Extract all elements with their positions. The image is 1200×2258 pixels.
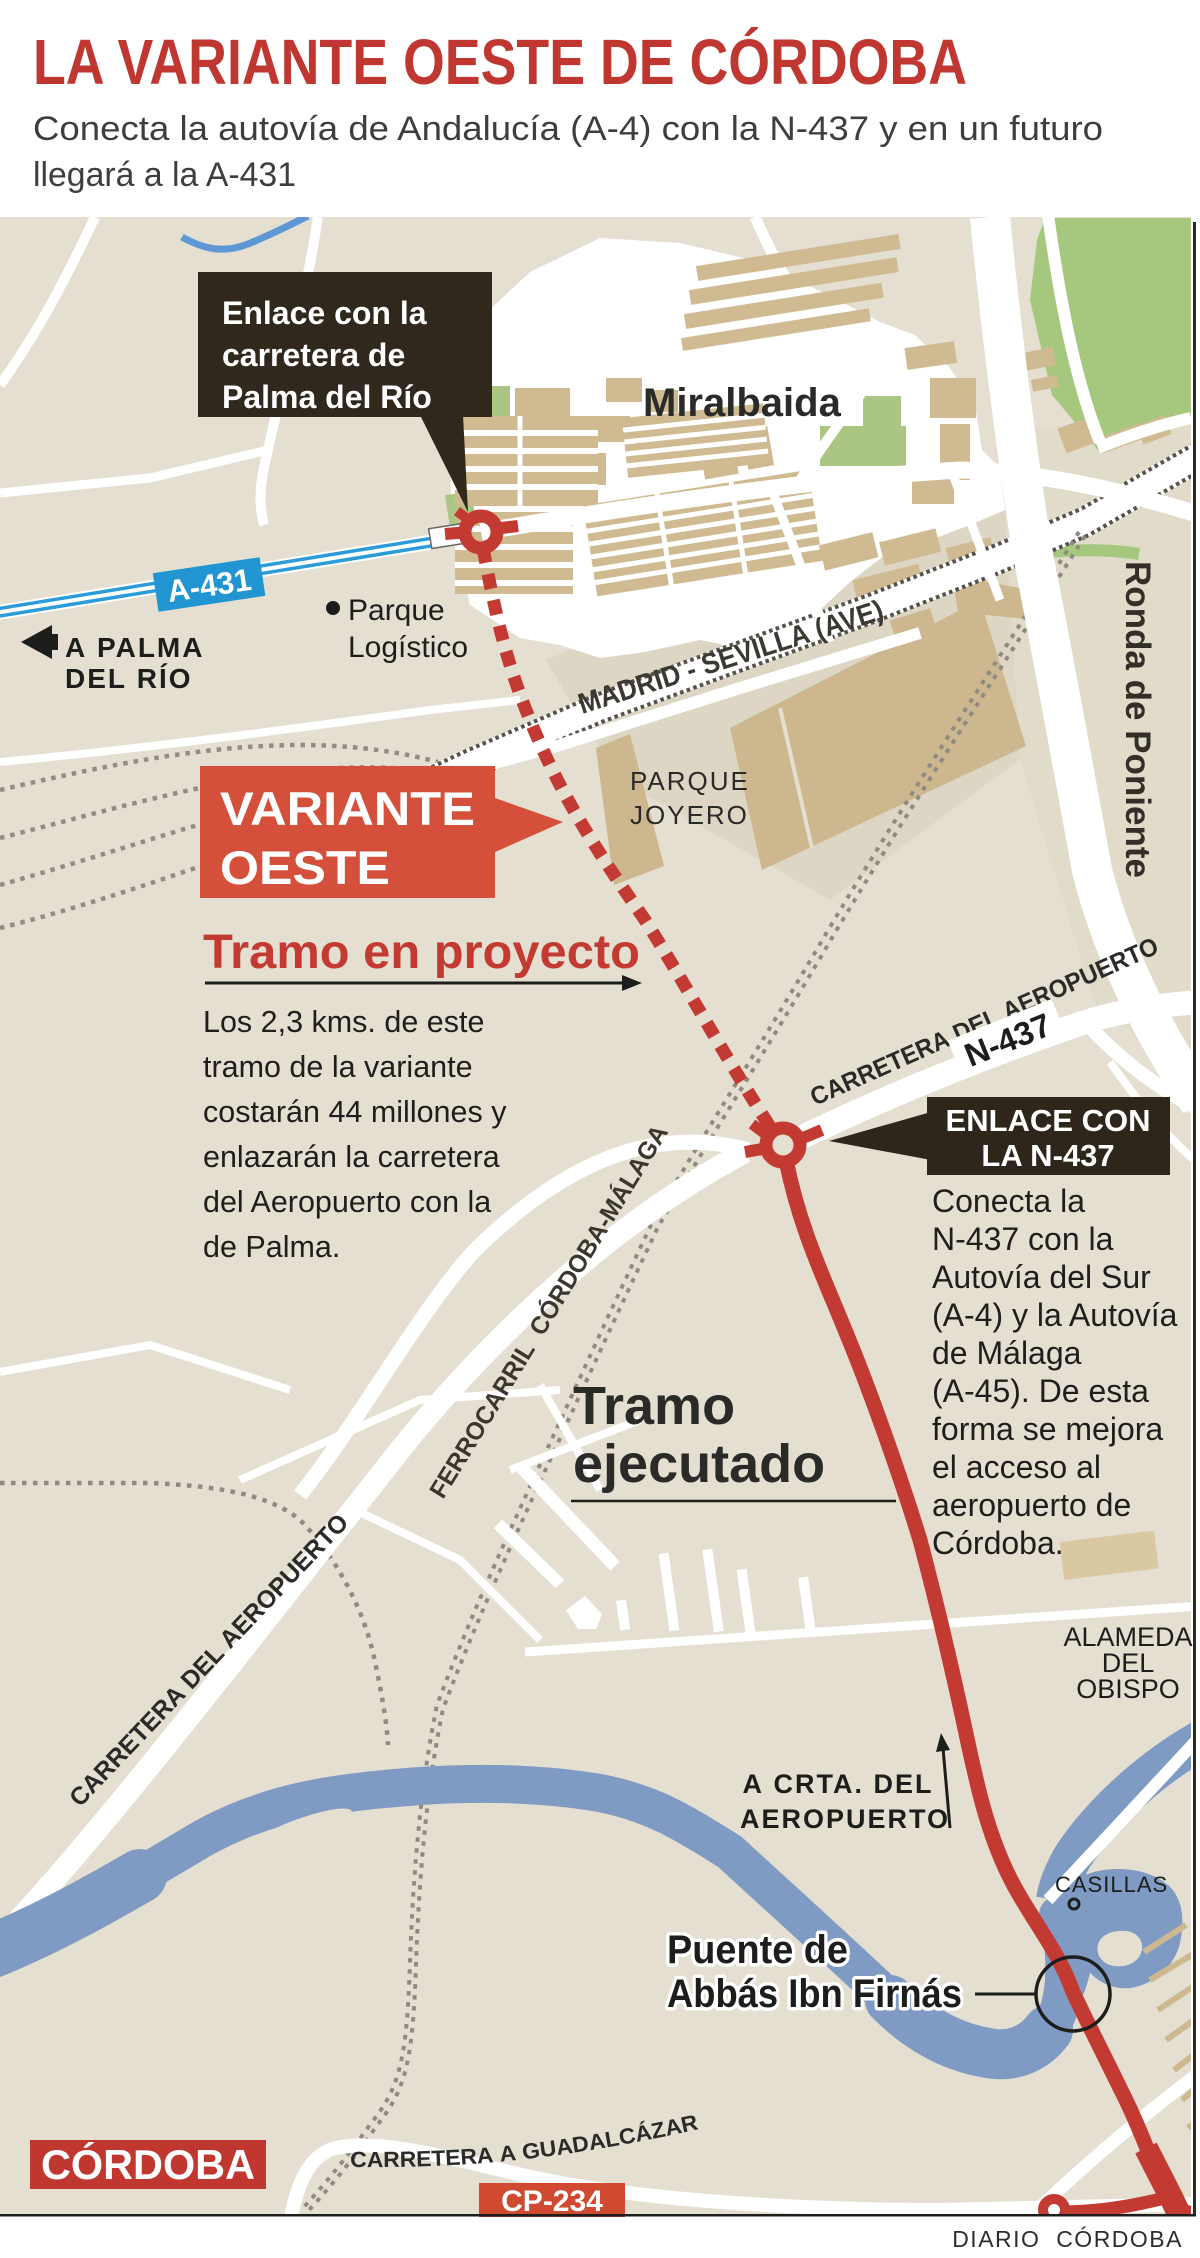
svg-text:CÓRDOBA: CÓRDOBA [41,2140,255,2188]
svg-text:Autovía del Sur: Autovía del Sur [932,1259,1151,1295]
svg-text:DEL RÍO: DEL RÍO [65,663,193,694]
svg-text:A PALMA: A PALMA [65,632,204,663]
svg-text:aeropuerto de: aeropuerto de [932,1487,1131,1523]
svg-text:Tramo: Tramo [573,1376,735,1436]
svg-text:carretera de: carretera de [222,337,405,373]
svg-text:DIARIO CÓRDOBA: DIARIO CÓRDOBA [952,2226,1183,2252]
svg-text:LA VARIANTE OESTE DE CÓRDOBA: LA VARIANTE OESTE DE CÓRDOBA [33,26,967,98]
svg-text:enlazarán la carretera: enlazarán la carretera [203,1140,500,1174]
svg-text:VARIANTE: VARIANTE [220,782,475,835]
svg-text:Parque: Parque [348,594,445,627]
svg-text:tramo de la variante: tramo de la variante [203,1050,473,1084]
svg-text:N-437 con la: N-437 con la [932,1221,1114,1257]
svg-text:Córdoba.: Córdoba. [932,1525,1064,1561]
svg-text:Puente de: Puente de [667,1928,848,1972]
svg-text:del Aeropuerto con la: del Aeropuerto con la [203,1185,491,1219]
svg-text:Ronda de Poniente: Ronda de Poniente [1118,561,1157,878]
svg-text:costarán 44 millones y: costarán 44 millones y [203,1095,507,1129]
svg-text:OBISPO: OBISPO [1076,1674,1180,1704]
svg-text:Palma del Río: Palma del Río [222,379,432,415]
svg-text:CP-234: CP-234 [501,2185,603,2218]
svg-text:Los 2,3 kms. de este: Los 2,3 kms. de este [203,1005,484,1039]
svg-text:Tramo en proyecto: Tramo en proyecto [203,926,640,979]
svg-text:A CRTA. DEL: A CRTA. DEL [743,1769,934,1799]
svg-text:ENLACE CON: ENLACE CON [946,1103,1151,1138]
svg-text:de Málaga: de Málaga [932,1335,1082,1371]
svg-text:AEROPUERTO: AEROPUERTO [740,1804,950,1834]
svg-text:ejecutado: ejecutado [573,1434,825,1494]
svg-text:CASILLAS: CASILLAS [1055,1872,1168,1897]
svg-text:de Palma.: de Palma. [203,1230,340,1264]
svg-text:OESTE: OESTE [220,841,390,894]
svg-text:LA N-437: LA N-437 [981,1138,1114,1173]
svg-text:Conecta la: Conecta la [932,1183,1085,1219]
svg-text:Logístico: Logístico [348,631,468,664]
svg-text:el acceso al: el acceso al [932,1449,1101,1485]
svg-text:Conecta la autovía de Andalucí: Conecta la autovía de Andalucía (A-4) co… [33,110,1103,148]
svg-text:Abbás Ibn Firnás: Abbás Ibn Firnás [667,1972,962,2016]
svg-text:Enlace con la: Enlace con la [222,295,427,331]
svg-text:JOYERO: JOYERO [630,800,749,830]
svg-text:llegará a la A-431: llegará a la A-431 [33,156,296,194]
svg-text:Miralbaida: Miralbaida [643,381,842,425]
svg-text:(A-4) y la Autovía: (A-4) y la Autovía [932,1297,1178,1333]
svg-text:PARQUE: PARQUE [630,766,750,796]
svg-text:forma se mejora: forma se mejora [932,1411,1163,1447]
svg-text:(A-45). De esta: (A-45). De esta [932,1373,1149,1409]
